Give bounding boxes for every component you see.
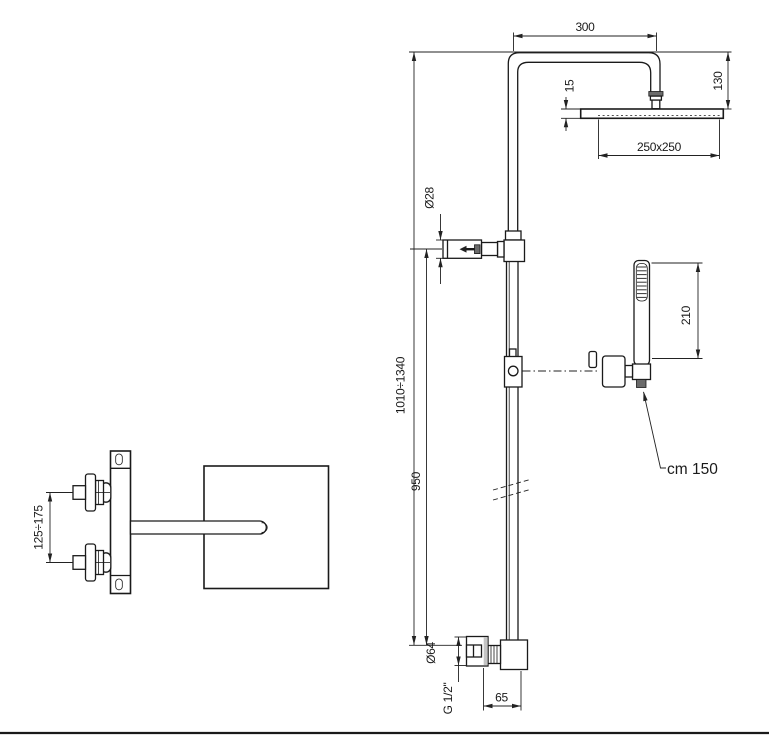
arrow-bottom bbox=[696, 350, 700, 359]
mixer-spout-pipe bbox=[131, 521, 268, 534]
dim-15-label: 15 bbox=[563, 79, 577, 92]
arrow-right bbox=[512, 704, 521, 708]
flange-shaded-edge bbox=[484, 637, 488, 665]
handle-disc bbox=[86, 474, 96, 511]
dim-210: 210 bbox=[652, 263, 703, 359]
dim-210-label: 210 bbox=[679, 305, 693, 325]
diverter-collar bbox=[498, 242, 505, 258]
leader-arrow bbox=[643, 391, 647, 401]
overhead-shower-head bbox=[581, 109, 724, 118]
dim-28-label: Ø28 bbox=[423, 186, 437, 208]
dim-65-label: 65 bbox=[495, 691, 508, 705]
head-connector-nut bbox=[649, 92, 663, 109]
outlet-elbow-block bbox=[501, 640, 528, 670]
shower-arm-inner-edge bbox=[518, 62, 651, 231]
wall-outlet-assembly bbox=[467, 637, 528, 670]
hose-nut bbox=[637, 380, 647, 388]
arrow-top bbox=[424, 249, 428, 258]
arrow-bottom bbox=[412, 636, 416, 645]
dim-250x250: 250x250 bbox=[599, 120, 720, 160]
arrow-top bbox=[412, 52, 416, 61]
handle-cradle bbox=[633, 364, 651, 380]
dim-1010-1340: 1010÷1340 bbox=[394, 52, 417, 645]
break-line-1 bbox=[493, 480, 530, 491]
shower-column-figure bbox=[443, 53, 723, 670]
holder-step bbox=[625, 366, 633, 378]
bracket-tab bbox=[510, 349, 517, 357]
mixer-bottom-handle bbox=[73, 544, 111, 581]
dim-15: 15 bbox=[561, 79, 580, 131]
handle-nut bbox=[73, 556, 86, 570]
arrow-bottom bbox=[456, 657, 460, 666]
dim-64-label: Ø64 bbox=[424, 641, 438, 663]
arrow-left bbox=[599, 153, 608, 157]
dim-125-175: 125÷175 bbox=[32, 493, 74, 563]
arrow-down bbox=[438, 231, 442, 240]
thermostatic-mixer-figure bbox=[73, 451, 329, 594]
diverter-assembly bbox=[443, 231, 525, 262]
nut-ring-top bbox=[649, 92, 663, 97]
column-break-lines bbox=[493, 480, 530, 501]
nut-cylinder bbox=[652, 100, 660, 109]
holder-body bbox=[603, 356, 626, 387]
dim-300: 300 bbox=[514, 20, 657, 51]
arrow-left bbox=[514, 34, 523, 38]
dim-125-175-label: 125÷175 bbox=[32, 505, 46, 550]
dim-250x250-label: 250x250 bbox=[637, 140, 682, 154]
dim-130: 130 bbox=[711, 52, 732, 109]
arrow-tail-block bbox=[475, 245, 481, 254]
dim-65: 65 bbox=[484, 668, 522, 711]
shower-system-diagram: 300 130 15 250x250 Ø28 bbox=[0, 0, 769, 740]
diverter-body-block bbox=[504, 240, 525, 262]
dim-130-label: 130 bbox=[711, 71, 725, 91]
arrow-bottom bbox=[726, 100, 730, 109]
column-tube bbox=[507, 262, 519, 641]
thread-size-label: G 1/2" bbox=[441, 683, 455, 715]
diverter-neck bbox=[482, 243, 498, 256]
handle-disc bbox=[86, 544, 96, 581]
bracket-knob bbox=[508, 366, 518, 376]
dim-1010-1340-label: 1010÷1340 bbox=[394, 356, 408, 414]
arrow-right bbox=[711, 153, 720, 157]
hose-length-callout: cm 150 bbox=[643, 391, 718, 478]
handle-nut bbox=[73, 486, 86, 500]
hose-length-label: cm 150 bbox=[667, 461, 718, 478]
holder-lever bbox=[589, 352, 597, 368]
leader-line bbox=[644, 392, 667, 468]
arrow-top bbox=[696, 263, 700, 272]
mixer-body-bar bbox=[111, 451, 131, 594]
dim-diameter-64: Ø64 bbox=[424, 637, 467, 682]
head-slab bbox=[581, 109, 724, 118]
dim-diameter-28: Ø28 bbox=[423, 186, 444, 284]
arrow-up bbox=[564, 118, 568, 127]
spout-outline bbox=[131, 521, 267, 534]
arrow-right bbox=[648, 34, 657, 38]
dim-300-label: 300 bbox=[575, 20, 595, 34]
column-sleeve bbox=[506, 231, 522, 240]
arrow-up bbox=[438, 258, 442, 267]
arrow-left bbox=[484, 704, 493, 708]
technical-drawing-page: 300 130 15 250x250 Ø28 bbox=[0, 0, 769, 740]
mixer-bar bbox=[111, 451, 131, 594]
arrow-top bbox=[48, 493, 52, 502]
arrow-down bbox=[564, 100, 568, 109]
break-line-2 bbox=[493, 490, 530, 501]
arrow-bottom bbox=[48, 554, 52, 563]
arrow-top bbox=[726, 52, 730, 61]
hand-shower bbox=[589, 261, 651, 388]
arrow-top bbox=[456, 637, 460, 646]
dim-950-label: 950 bbox=[409, 471, 423, 491]
mixer-top-handle bbox=[73, 474, 111, 511]
